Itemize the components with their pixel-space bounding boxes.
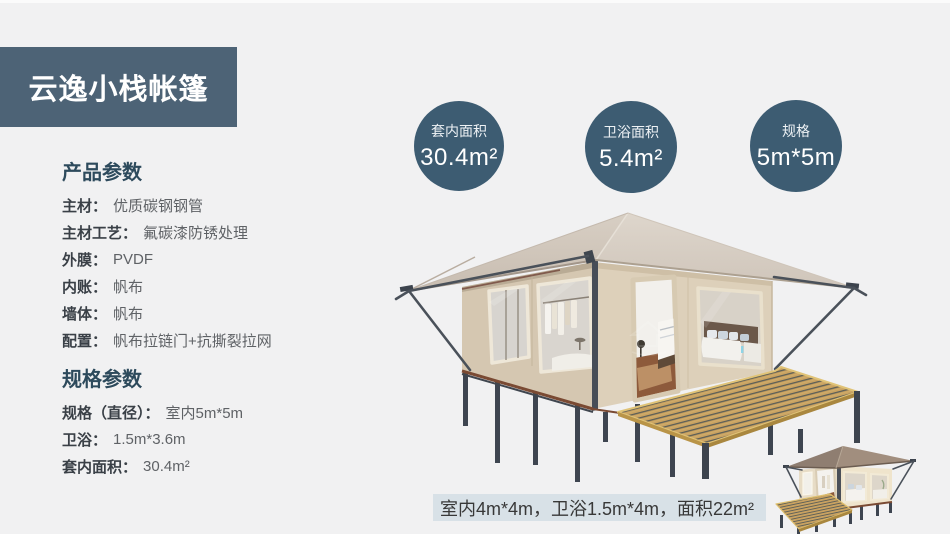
param-label: 主材工艺： <box>62 222 137 243</box>
stat-circle-spec: 规格 5m*5m <box>750 100 842 192</box>
product-params-section: 产品参数 主材： 优质碳钢钢管 主材工艺： 氟碳漆防锈处理 外膜： PVDF 内… <box>62 162 392 354</box>
param-label: 内账： <box>62 276 107 297</box>
small-tent-roof <box>783 446 916 468</box>
param-value: PVDF <box>113 251 153 268</box>
tent-window-side-2 <box>538 278 592 372</box>
param-row-inner-tent: 内账： 帆布 <box>62 273 392 300</box>
param-label: 外膜： <box>62 249 107 270</box>
param-value: 优质碳钢钢管 <box>113 195 203 216</box>
top-edge-highlight <box>0 0 950 3</box>
param-row-config: 配置： 帆布拉链门+抗撕裂拉网 <box>62 327 392 354</box>
caption-text: 室内4m*4m，卫浴1.5m*4m，面积22m² <box>433 495 754 521</box>
param-row-material: 主材： 优质碳钢钢管 <box>62 192 392 219</box>
param-row-wall: 墙体： 帆布 <box>62 300 392 327</box>
tent-window-front <box>698 288 763 368</box>
stat-circle-indoor-area: 套内面积 30.4m² <box>414 101 504 191</box>
caption-bar: 室内4m*4m，卫浴1.5m*4m，面积22m² <box>433 494 766 521</box>
param-row-size: 规格（直径）： 室内5m*5m <box>62 399 392 426</box>
stat-value: 5m*5m <box>757 144 836 172</box>
small-tent-illustration <box>770 428 950 534</box>
spec-params-section: 规格参数 规格（直径）： 室内5m*5m 卫浴： 1.5m*3.6m 套内面积：… <box>62 369 392 480</box>
param-value: 氟碳漆防锈处理 <box>143 222 248 243</box>
param-row-outer-membrane: 外膜： PVDF <box>62 246 392 273</box>
param-row-inner-area: 套内面积： 30.4m² <box>62 453 392 480</box>
param-row-material-craft: 主材工艺： 氟碳漆防锈处理 <box>62 219 392 246</box>
stat-value: 5.4m² <box>599 145 663 173</box>
tent-door <box>633 277 678 400</box>
param-label: 套内面积： <box>62 456 137 477</box>
param-value: 帆布 <box>113 303 143 324</box>
param-label: 墙体： <box>62 303 107 324</box>
param-value: 帆布 <box>113 276 143 297</box>
stat-value: 30.4m² <box>420 144 498 172</box>
param-row-bathroom: 卫浴： 1.5m*3.6m <box>62 426 392 453</box>
stat-label: 卫浴面积 <box>603 122 659 142</box>
param-value: 30.4m² <box>143 458 190 475</box>
spec-params-heading: 规格参数 <box>62 369 392 391</box>
product-params-heading: 产品参数 <box>62 162 392 184</box>
param-value: 室内5m*5m <box>166 402 244 423</box>
param-label: 主材： <box>62 195 107 216</box>
param-value: 1.5m*3.6m <box>113 431 186 448</box>
page-background: 云逸小栈帐篷 产品参数 主材： 优质碳钢钢管 主材工艺： 氟碳漆防锈处理 外膜：… <box>0 0 950 534</box>
stat-circle-bath-area: 卫浴面积 5.4m² <box>585 101 677 193</box>
param-value: 帆布拉链门+抗撕裂拉网 <box>113 330 272 351</box>
title-box: 云逸小栈帐篷 <box>0 47 237 127</box>
param-label: 卫浴： <box>62 429 107 450</box>
param-label: 配置： <box>62 330 107 351</box>
stat-label: 规格 <box>782 121 810 141</box>
tent-window-side-1 <box>489 286 529 363</box>
stat-label: 套内面积 <box>431 121 487 141</box>
param-label: 规格（直径）： <box>62 402 160 423</box>
page-title: 云逸小栈帐篷 <box>28 66 208 108</box>
